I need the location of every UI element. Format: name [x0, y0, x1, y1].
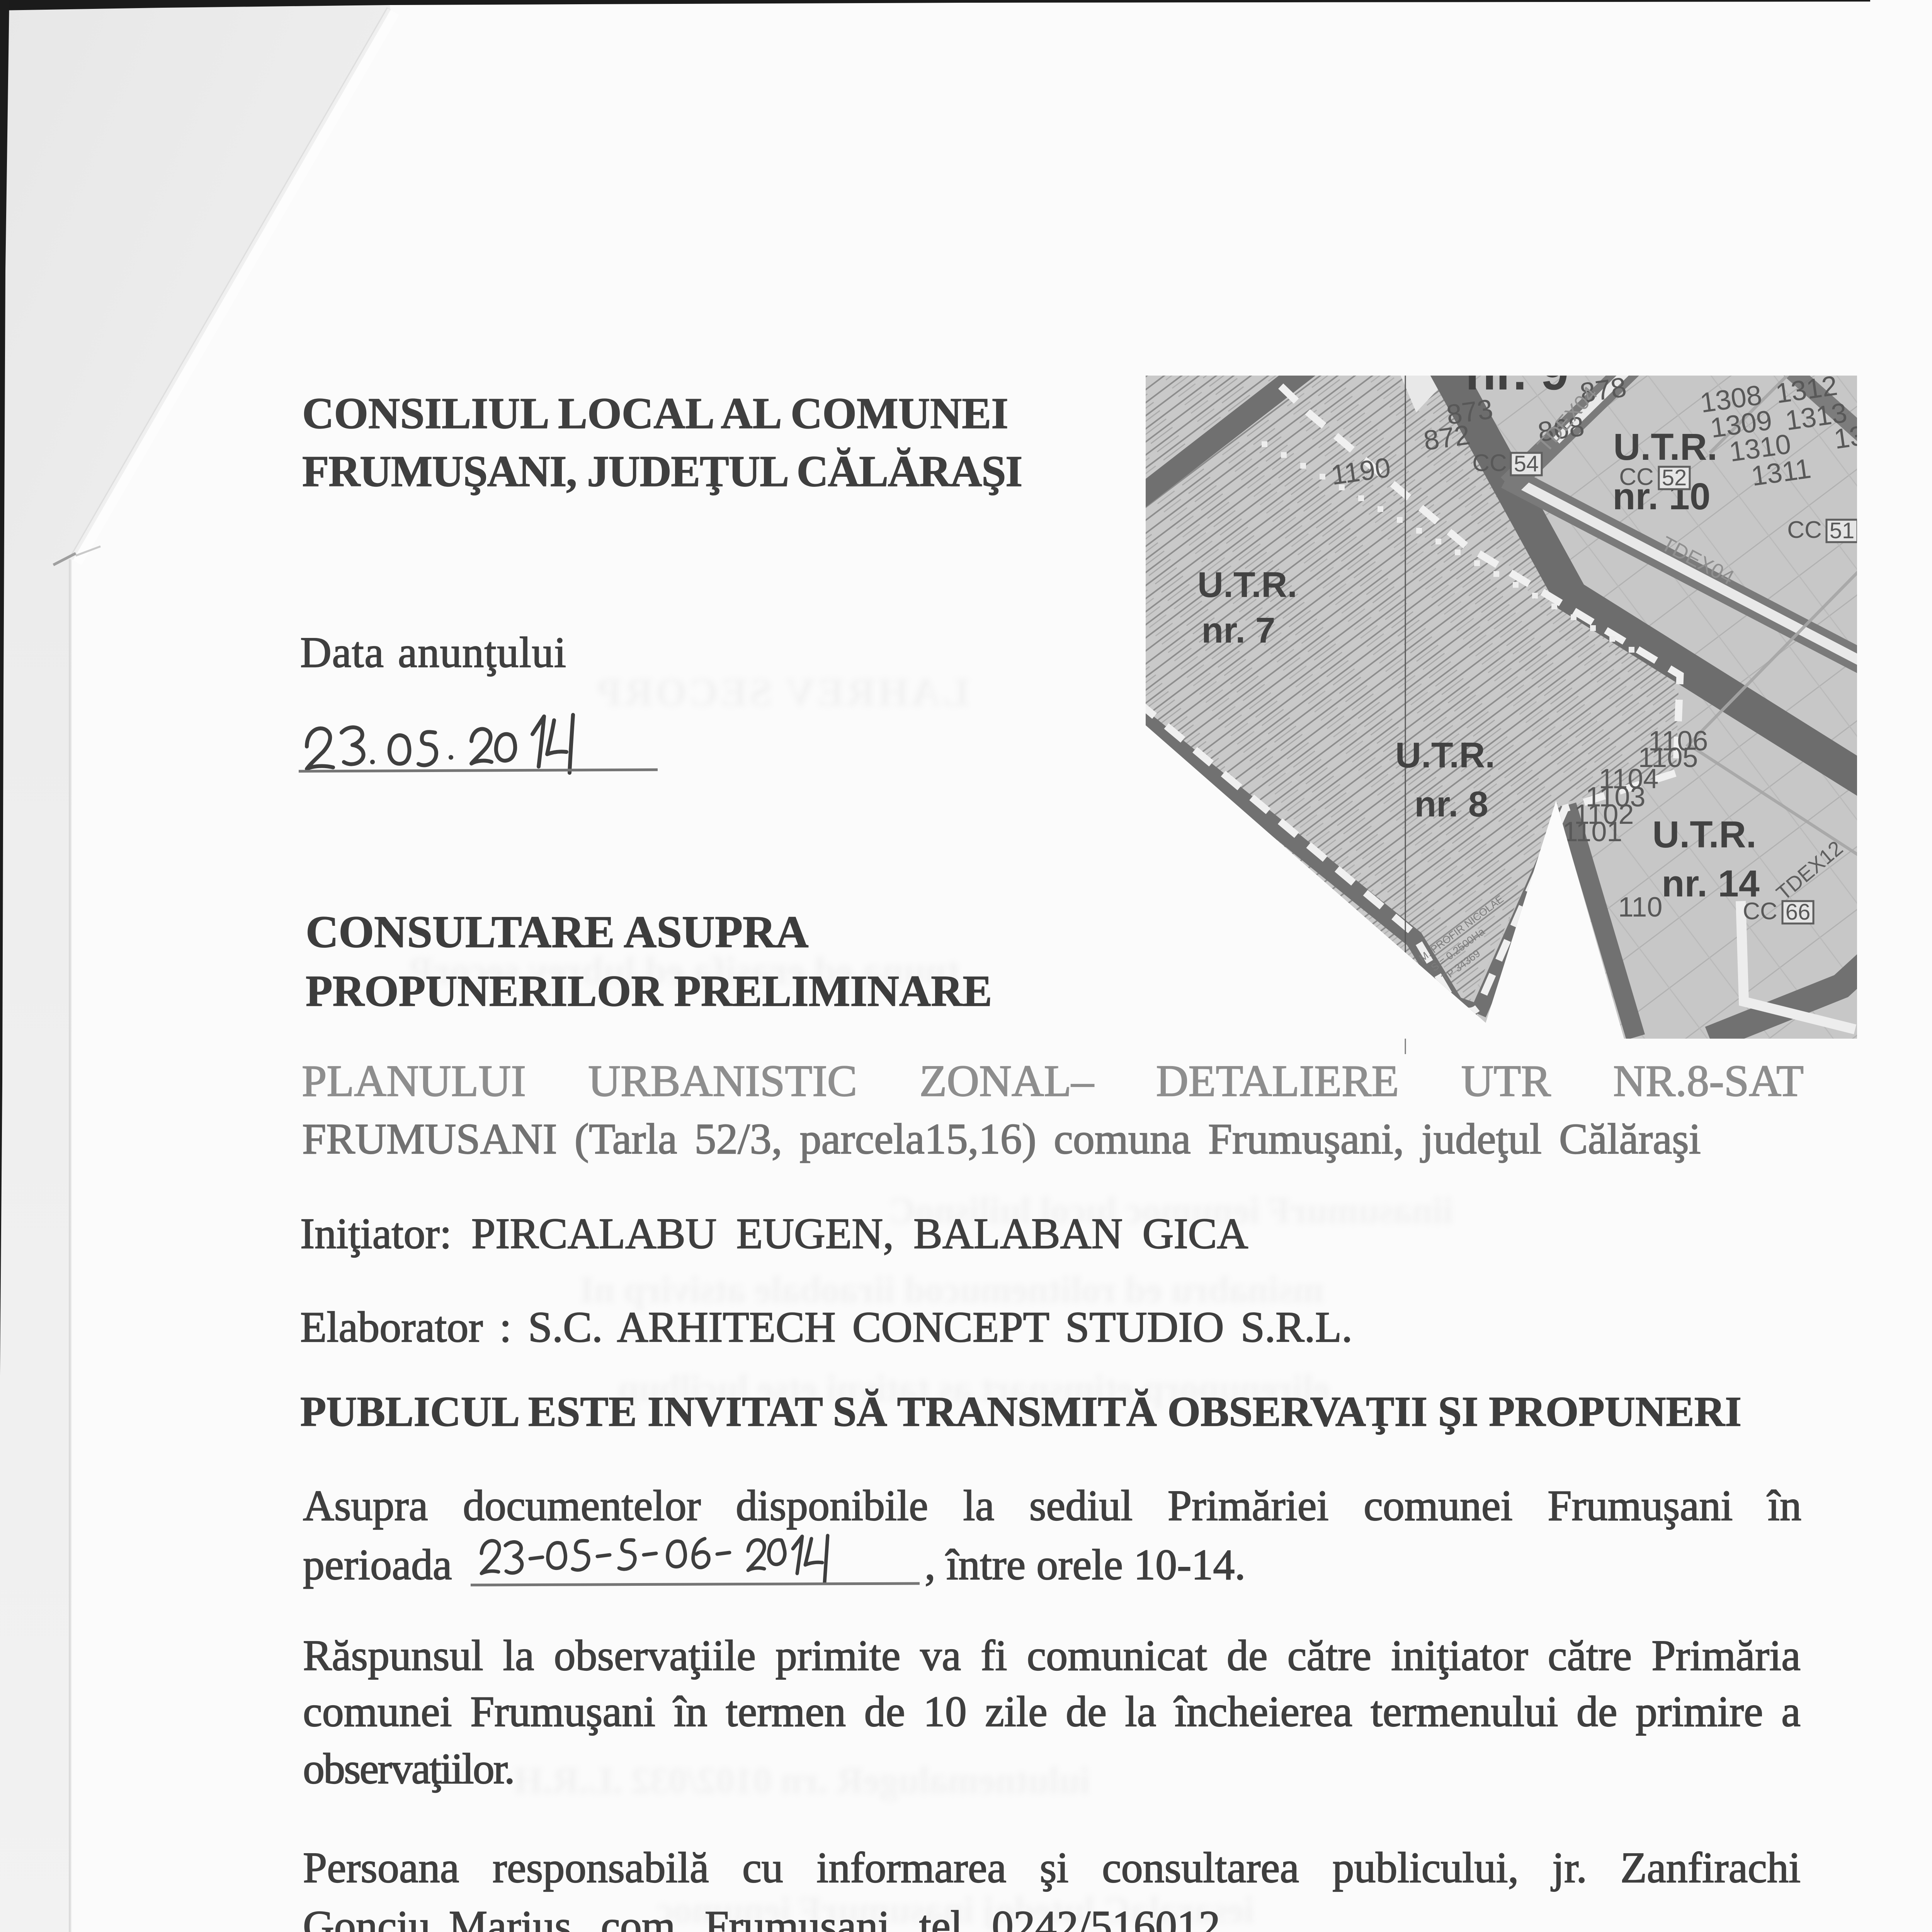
svg-text:CC: CC	[1472, 450, 1507, 476]
svg-text:U.T.R.: U.T.R.	[1613, 426, 1717, 468]
svg-text:131: 131	[1832, 418, 1857, 455]
svg-text:54: 54	[1514, 451, 1539, 476]
svg-text:U.T.R.: U.T.R.	[1395, 735, 1495, 775]
svg-text:110: 110	[1618, 892, 1663, 923]
svg-text:66: 66	[1786, 900, 1811, 925]
svg-text:CC: CC	[1619, 464, 1654, 490]
svg-text:52: 52	[1662, 465, 1687, 490]
svg-text:51: 51	[1830, 518, 1855, 543]
svg-text:U.T.R.: U.T.R.	[1197, 565, 1297, 605]
svg-text:nr. 7: nr. 7	[1201, 610, 1275, 650]
svg-text:1101: 1101	[1563, 816, 1622, 847]
svg-text:nr. 8: nr. 8	[1414, 784, 1488, 824]
svg-text:CC: CC	[1787, 517, 1822, 543]
svg-text:U.T.R.: U.T.R.	[1652, 813, 1756, 855]
svg-text:872: 872	[1422, 419, 1472, 456]
svg-text:CC: CC	[1743, 898, 1777, 925]
